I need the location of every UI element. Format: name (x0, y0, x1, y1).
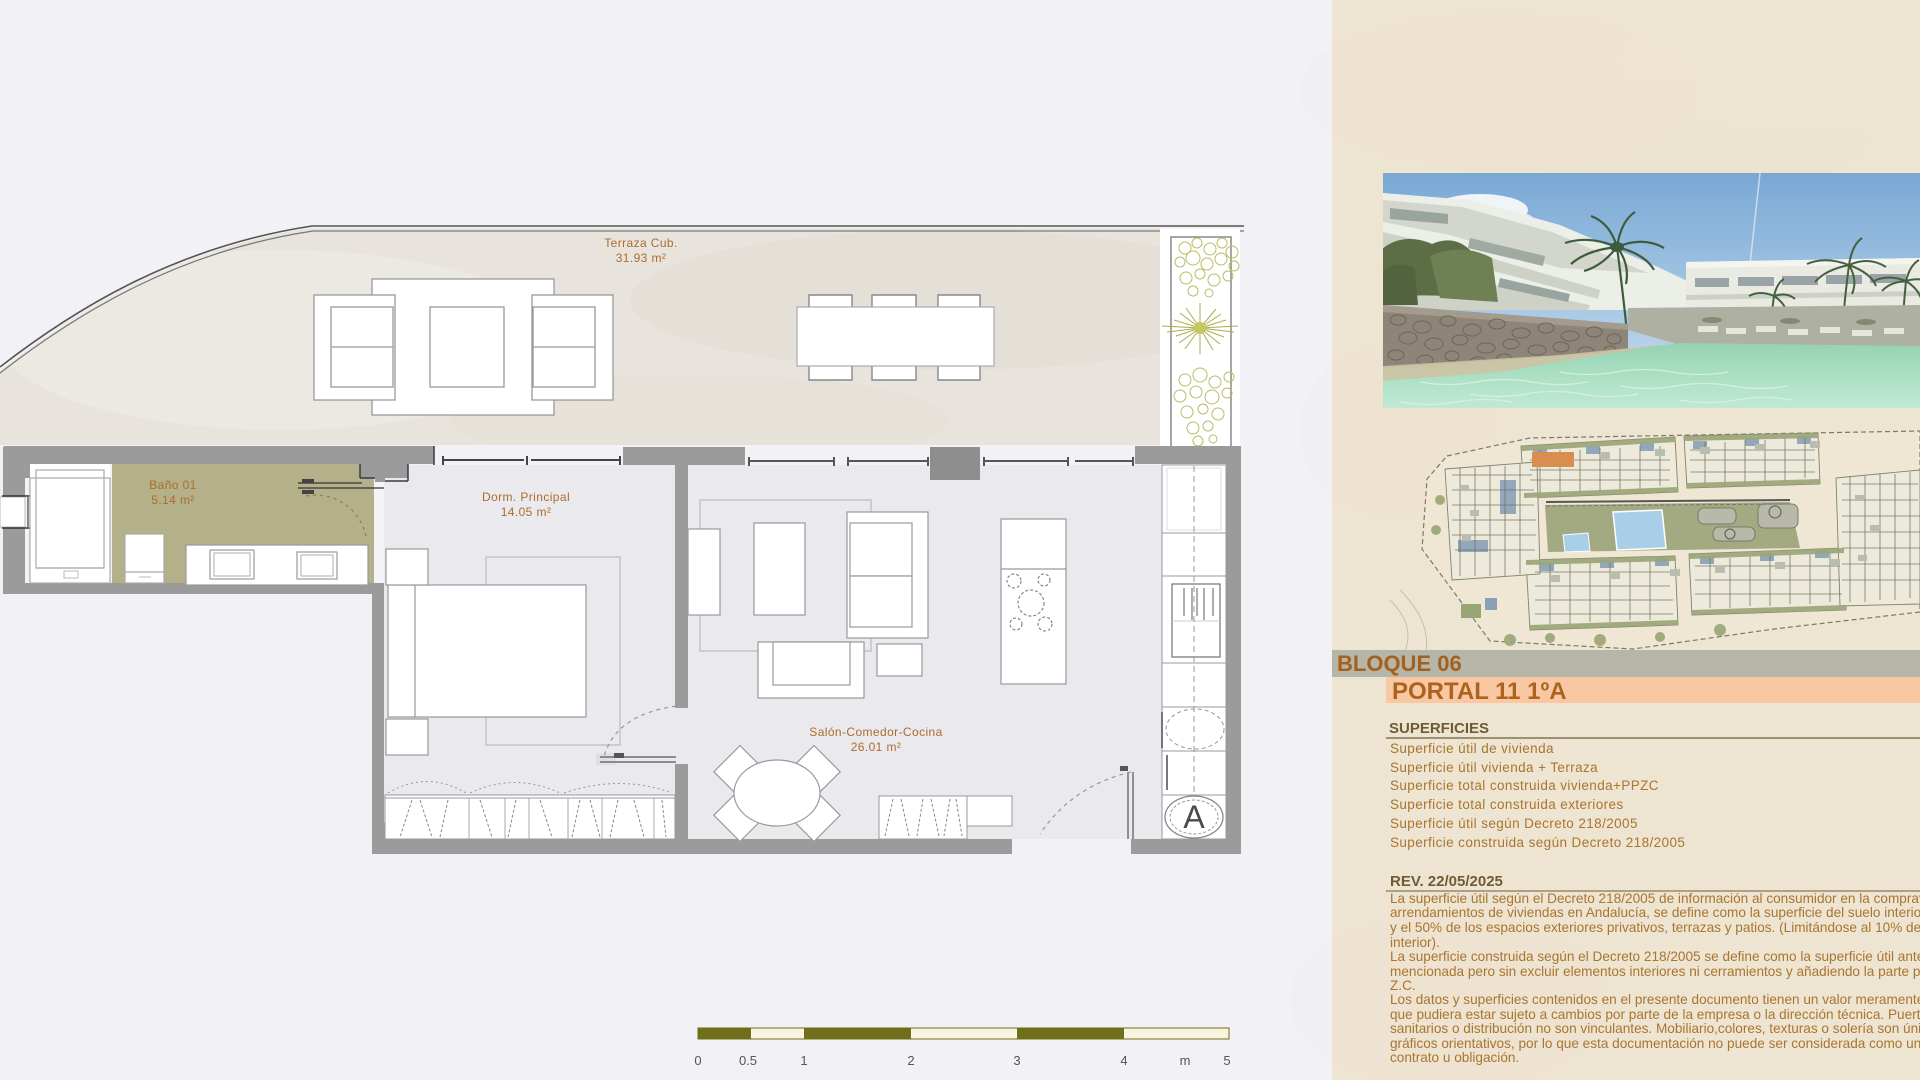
svg-text:3: 3 (1013, 1053, 1020, 1068)
svg-text:4: 4 (1120, 1053, 1127, 1068)
svg-text:Salón-Comedor-Cocina: Salón-Comedor-Cocina (809, 725, 942, 739)
svg-text:1: 1 (800, 1053, 807, 1068)
svg-text:2: 2 (907, 1053, 914, 1068)
svg-text:Superficie construida según De: Superficie construida según Decreto 218/… (1390, 835, 1685, 850)
svg-text:A: A (1183, 799, 1205, 835)
svg-text:SUPERFICIES: SUPERFICIES (1389, 720, 1489, 737)
svg-text:y el 50% de los espacios exter: y el 50% de los espacios exteriores priv… (1390, 920, 1920, 935)
svg-text:que pudiera estar sujeto a cam: que pudiera estar sujeto a cambios por p… (1390, 1007, 1920, 1022)
svg-text:arrendamientos de viviendas en: arrendamientos de viviendas en Andalucía… (1390, 905, 1920, 920)
svg-text:0.5: 0.5 (739, 1053, 757, 1068)
svg-text:5: 5 (1223, 1053, 1230, 1068)
svg-text:Superficie total construida vi: Superficie total construida vivienda+PPZ… (1390, 778, 1659, 793)
svg-text:La superficie útil según el De: La superficie útil según el Decreto 218/… (1390, 891, 1920, 906)
svg-text:contrato u obligación.: contrato u obligación. (1390, 1050, 1519, 1065)
svg-text:Superficie útil según Decreto: Superficie útil según Decreto 218/2005 (1390, 816, 1638, 831)
svg-text:Z.C.: Z.C. (1390, 978, 1416, 993)
svg-text:PORTAL 11 1ºA: PORTAL 11 1ºA (1392, 678, 1567, 705)
svg-text:31.93 m²: 31.93 m² (616, 251, 667, 265)
svg-text:Dorm. Principal: Dorm. Principal (482, 490, 570, 504)
svg-text:Superficie útil vivienda + Ter: Superficie útil vivienda + Terraza (1390, 760, 1598, 775)
svg-text:14.05 m²: 14.05 m² (501, 505, 552, 519)
svg-text:m: m (1180, 1053, 1191, 1068)
svg-text:Superficie útil de vivienda: Superficie útil de vivienda (1390, 741, 1554, 756)
svg-text:Los datos y superficies conten: Los datos y superficies contenidos en el… (1390, 992, 1920, 1007)
svg-text:5.14 m²: 5.14 m² (151, 493, 194, 507)
svg-text:Superficie total construida ex: Superficie total construida exteriores (1390, 797, 1624, 812)
svg-text:BLOQUE 06: BLOQUE 06 (1337, 651, 1462, 676)
svg-text:REV. 22/05/2025: REV. 22/05/2025 (1390, 873, 1503, 890)
svg-text:interior).: interior). (1390, 935, 1440, 950)
svg-text:Baño 01: Baño 01 (149, 478, 197, 492)
svg-text:La superficie construida según: La superficie construida según el Decret… (1390, 949, 1920, 964)
svg-text:mencionada pero sin excluir el: mencionada pero sin excluir elementos in… (1390, 964, 1920, 979)
svg-text:Terraza Cub.: Terraza Cub. (604, 236, 678, 250)
svg-text:gráficos orientativos, por lo: gráficos orientativos, por lo que esta d… (1390, 1036, 1920, 1051)
svg-text:0: 0 (694, 1053, 701, 1068)
svg-text:26.01 m²: 26.01 m² (851, 740, 902, 754)
svg-text:sanitarios o distribución no s: sanitarios o distribución no son vincula… (1390, 1021, 1920, 1036)
